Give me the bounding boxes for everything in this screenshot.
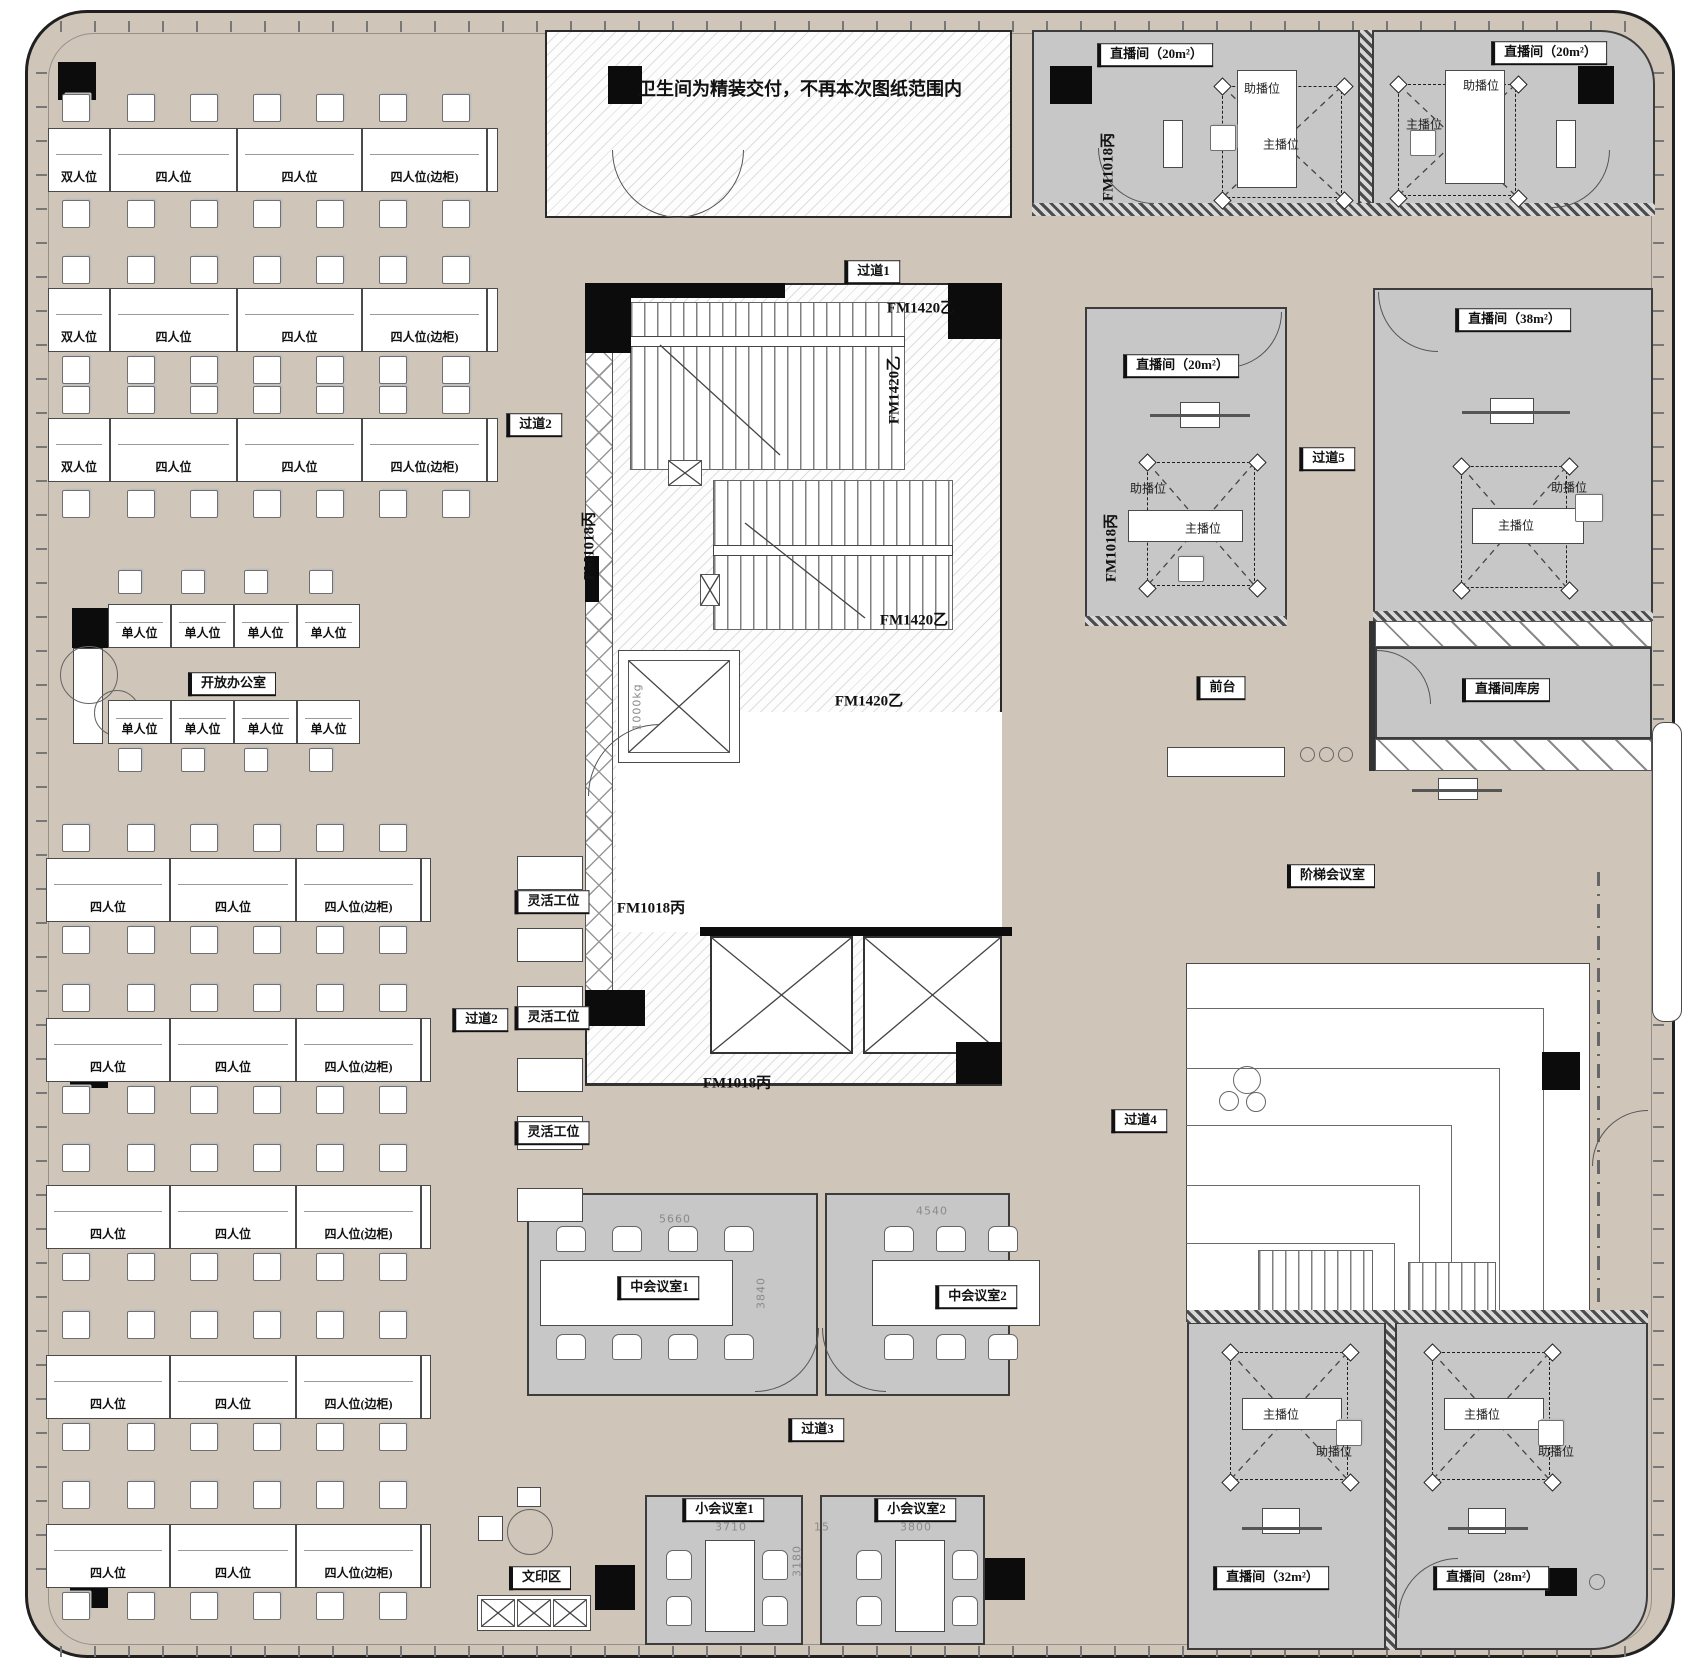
column	[1542, 1052, 1580, 1090]
desk-四人位: 四人位	[46, 1355, 170, 1419]
column	[608, 66, 642, 104]
chair	[62, 356, 90, 384]
chair	[190, 1086, 218, 1114]
chair	[379, 356, 407, 384]
chair	[62, 824, 90, 852]
desk-label: 四人位	[111, 458, 236, 475]
desk-label: 四人位	[238, 328, 361, 345]
desk-label: 双人位	[49, 458, 109, 475]
desk-单人位: 单人位	[108, 604, 171, 648]
chair	[316, 386, 344, 414]
chair	[316, 256, 344, 284]
live-28-label: 直播间（28m²）	[1433, 1566, 1549, 1590]
chair	[253, 94, 281, 122]
text-seat: 主播位	[1263, 136, 1299, 153]
desk-四人位(边柜): 四人位(边柜)	[362, 418, 487, 482]
table-circle	[1233, 1066, 1261, 1094]
chair	[316, 1423, 344, 1451]
wall-band	[1360, 30, 1372, 205]
table-circle	[1219, 1091, 1239, 1111]
column	[1578, 66, 1614, 104]
chair	[127, 490, 155, 518]
camera-bar	[1242, 1527, 1322, 1530]
chair	[379, 200, 407, 228]
chair	[442, 256, 470, 284]
text-seat: 主播位	[1185, 520, 1221, 537]
desk-四人位: 四人位	[110, 128, 237, 192]
desk-四人位: 四人位	[237, 128, 362, 192]
corridor-4: 过道4	[1111, 1109, 1167, 1133]
camera	[1468, 1508, 1506, 1534]
text-seat: 主播位	[1498, 517, 1534, 534]
meeting-chair	[666, 1596, 692, 1626]
desk-label: 单人位	[172, 624, 233, 641]
desk-四人位: 四人位	[46, 1524, 170, 1588]
chair	[309, 748, 333, 772]
chair	[190, 984, 218, 1012]
desk-label: 单人位	[172, 720, 233, 737]
chair	[62, 926, 90, 954]
meeting-chair	[668, 1226, 698, 1252]
desk-label: 四人位	[171, 898, 295, 915]
chair	[316, 94, 344, 122]
chair	[127, 1592, 155, 1620]
text-seat: 助播位	[1316, 1443, 1352, 1460]
chair	[379, 824, 407, 852]
chair	[62, 386, 90, 414]
chair	[190, 200, 218, 228]
camera	[1262, 1508, 1300, 1534]
chair	[127, 1423, 155, 1451]
desk-四人位: 四人位	[110, 418, 237, 482]
tiered-room-label: 阶梯会议室	[1287, 864, 1375, 888]
desk-label: 单人位	[298, 720, 359, 737]
stool	[1319, 747, 1334, 762]
chair	[316, 1481, 344, 1509]
desk-label: 四人位	[238, 168, 361, 185]
copier	[553, 1599, 587, 1627]
desk-四人位: 四人位	[170, 1018, 296, 1082]
desk-label: 四人位(边柜)	[363, 168, 486, 185]
desk-label: 四人位	[47, 898, 169, 915]
meeting-chair	[556, 1226, 586, 1252]
desk-label: 四人位	[47, 1395, 169, 1412]
chair	[190, 386, 218, 414]
chair	[316, 1592, 344, 1620]
chair	[442, 386, 470, 414]
desk-四人位(边柜): 四人位(边柜)	[362, 128, 487, 192]
chair	[442, 490, 470, 518]
text-seat: 主播位	[1406, 116, 1442, 133]
chair	[190, 1481, 218, 1509]
meeting-m2-label: 中会议室2	[935, 1285, 1017, 1309]
desk-label: 单人位	[109, 720, 170, 737]
chair	[316, 824, 344, 852]
desk-label: 四人位(边柜)	[363, 328, 486, 345]
meeting-chair	[988, 1334, 1018, 1360]
desk-单人位: 单人位	[297, 604, 360, 648]
stool-square	[478, 1516, 503, 1541]
flex-desk	[517, 928, 583, 962]
desk-label: 单人位	[298, 624, 359, 641]
text-fm: FM1018丙	[578, 512, 599, 580]
desk-四人位(边柜): 四人位(边柜)	[296, 1185, 421, 1249]
print-area: 文印区	[509, 1566, 571, 1590]
desk-label: 单人位	[235, 720, 296, 737]
corridor-2: 过道2	[506, 413, 562, 437]
reception: 前台	[1196, 676, 1245, 700]
text-dim: 15	[814, 1521, 830, 1534]
side-cabinet	[421, 1524, 431, 1588]
chair	[62, 1086, 90, 1114]
restroom-note: 卫生间为精装交付，不再本次图纸范围内	[638, 75, 962, 101]
text-fm: FM1018丙	[1097, 133, 1118, 201]
chair	[253, 356, 281, 384]
core-bottom-line	[585, 1083, 1002, 1086]
chair	[253, 1311, 281, 1339]
desk-label: 四人位(边柜)	[297, 1225, 420, 1242]
live-20c-label: 直播间（20m²）	[1123, 354, 1239, 378]
stool	[1300, 747, 1315, 762]
chair	[127, 1311, 155, 1339]
chair	[379, 386, 407, 414]
meeting-m1-label: 中会议室1	[617, 1276, 699, 1300]
corridor-3: 过道3	[788, 1418, 844, 1442]
chair	[379, 1311, 407, 1339]
chair	[316, 1253, 344, 1281]
chair	[62, 1592, 90, 1620]
chair	[190, 1423, 218, 1451]
desk-label: 四人位(边柜)	[297, 898, 420, 915]
desk-label: 双人位	[49, 328, 109, 345]
chair	[316, 1144, 344, 1172]
meeting-chair	[666, 1550, 692, 1580]
chair	[244, 570, 268, 594]
floor-drain	[1589, 1574, 1605, 1590]
chair	[190, 490, 218, 518]
chair	[62, 1311, 90, 1339]
text-seat: 助播位	[1551, 479, 1587, 496]
storage-rack	[1375, 621, 1652, 647]
flex-label: 灵活工位	[514, 890, 589, 914]
stair-arrow	[660, 345, 780, 455]
desk-四人位: 四人位	[237, 418, 362, 482]
desk-四人位: 四人位	[46, 858, 170, 922]
reception-desk	[1167, 747, 1285, 777]
chair	[190, 356, 218, 384]
meeting-chair	[762, 1596, 788, 1626]
chair	[309, 570, 333, 594]
meeting-chair	[612, 1334, 642, 1360]
desk-label: 四人位	[238, 458, 361, 475]
desk-单人位: 单人位	[171, 604, 234, 648]
desk-label: 四人位(边柜)	[297, 1395, 420, 1412]
text-fm: FM1018丙	[1100, 514, 1121, 582]
chair	[118, 748, 142, 772]
stair-arrow	[745, 523, 865, 618]
chair	[379, 926, 407, 954]
flex-desk	[517, 856, 583, 890]
text-dim: 3840	[755, 1277, 768, 1309]
refuge-ledge	[1652, 722, 1682, 1022]
desk-label: 双人位	[49, 168, 109, 185]
copier	[517, 1599, 551, 1627]
desk-label: 四人位(边柜)	[297, 1058, 420, 1075]
chair	[127, 386, 155, 414]
chair	[442, 200, 470, 228]
desk-单人位: 单人位	[234, 700, 297, 744]
chair	[181, 748, 205, 772]
live-38-label: 直播间（38m²）	[1455, 308, 1571, 332]
chair	[316, 926, 344, 954]
desk-label: 四人位	[111, 328, 236, 345]
meeting-chair	[856, 1550, 882, 1580]
chair	[127, 356, 155, 384]
chair	[62, 1481, 90, 1509]
shaft-box	[668, 460, 702, 486]
stool-square	[517, 1487, 541, 1507]
desk-单人位: 单人位	[171, 700, 234, 744]
desk-label: 四人位	[111, 168, 236, 185]
text-fm: FM1420乙	[880, 609, 948, 630]
copier	[481, 1599, 515, 1627]
chair	[190, 824, 218, 852]
shaft-box	[700, 574, 720, 606]
meeting-chair	[884, 1334, 914, 1360]
column	[1545, 1568, 1577, 1596]
camera-bar	[1448, 1527, 1528, 1530]
meeting-chair	[762, 1550, 788, 1580]
chair	[244, 748, 268, 772]
meeting-table	[705, 1540, 755, 1632]
meeting-chair	[884, 1226, 914, 1252]
chair	[118, 570, 142, 594]
corridor-1: 过道1	[844, 260, 900, 284]
text-dim: 3180	[791, 1545, 804, 1577]
live-32-label: 直播间（32m²）	[1213, 1566, 1329, 1590]
meeting-chair	[936, 1334, 966, 1360]
chair	[253, 824, 281, 852]
meeting-chair	[556, 1334, 586, 1360]
side-cabinet	[487, 288, 498, 352]
chair	[316, 984, 344, 1012]
text-fm: FM1018丙	[617, 897, 685, 918]
chair	[379, 1086, 407, 1114]
desk-双人位: 双人位	[48, 288, 110, 352]
elevator-2	[863, 936, 1002, 1054]
chair	[316, 1086, 344, 1114]
chair	[253, 386, 281, 414]
meeting-chair	[724, 1226, 754, 1252]
flex-desk	[517, 1188, 583, 1222]
side-cabinet	[421, 1185, 431, 1249]
chair	[379, 984, 407, 1012]
chair	[127, 984, 155, 1012]
chair	[127, 824, 155, 852]
text-dim: 4540	[916, 1205, 948, 1218]
desk-单人位: 单人位	[297, 700, 360, 744]
text-dim: 5660	[659, 1213, 691, 1226]
live-20a-label: 直播间（20m²）	[1097, 43, 1213, 67]
chair	[379, 94, 407, 122]
text-seat: 助播位	[1244, 80, 1280, 97]
desk-label: 单人位	[235, 624, 296, 641]
column	[948, 283, 1002, 339]
desk-四人位: 四人位	[170, 858, 296, 922]
chair	[379, 1253, 407, 1281]
chair	[253, 256, 281, 284]
chair	[379, 1592, 407, 1620]
meeting-s1-label: 小会议室1	[682, 1498, 764, 1522]
chair	[379, 256, 407, 284]
meeting-chair	[668, 1334, 698, 1360]
text-fm: FM1420乙	[883, 356, 904, 424]
round-table	[507, 1509, 553, 1555]
text-dim: 3710	[715, 1521, 747, 1534]
text-fm: FM1420乙	[887, 297, 955, 318]
chair	[62, 1253, 90, 1281]
desk-四人位: 四人位	[46, 1018, 170, 1082]
floor-plan: 双人位四人位四人位四人位(边柜)双人位四人位四人位四人位(边柜)双人位四人位四人…	[0, 0, 1700, 1678]
chair	[1178, 556, 1204, 582]
wall-band	[1386, 1322, 1395, 1650]
chair	[190, 1144, 218, 1172]
meeting-table	[895, 1540, 945, 1632]
chair	[127, 1144, 155, 1172]
column	[956, 1042, 1002, 1084]
meeting-chair	[612, 1226, 642, 1252]
wall-line	[1369, 621, 1375, 771]
desk-label: 四人位	[171, 1058, 295, 1075]
flex-label: 灵活工位	[514, 1006, 589, 1030]
chair	[379, 490, 407, 518]
desk-四人位: 四人位	[110, 288, 237, 352]
chair	[253, 1423, 281, 1451]
desk-label: 四人位	[171, 1395, 295, 1412]
chair	[127, 1481, 155, 1509]
text-fm: FM1420乙	[835, 690, 903, 711]
flex-desk	[517, 1058, 583, 1092]
chair	[127, 1253, 155, 1281]
side-cabinet	[421, 1018, 431, 1082]
chair	[316, 490, 344, 518]
chair	[1410, 130, 1436, 156]
desk-四人位(边柜): 四人位(边柜)	[296, 1355, 421, 1419]
stool	[1338, 747, 1353, 762]
column	[72, 608, 108, 648]
chair	[379, 1481, 407, 1509]
flex-label: 灵活工位	[514, 1121, 589, 1145]
open-office: 开放办公室	[188, 672, 276, 696]
chair	[316, 1311, 344, 1339]
meeting-chair	[952, 1550, 978, 1580]
text-seat: 主播位	[1263, 1406, 1299, 1423]
column	[585, 990, 645, 1026]
chair	[190, 926, 218, 954]
side-cabinet	[421, 1355, 431, 1419]
chair	[62, 94, 90, 122]
chair	[62, 984, 90, 1012]
chair	[62, 200, 90, 228]
camera-bar	[1462, 411, 1570, 414]
chair	[127, 200, 155, 228]
desk-label: 四人位(边柜)	[297, 1564, 420, 1581]
desk-label: 四人位	[171, 1564, 295, 1581]
desk-四人位: 四人位	[237, 288, 362, 352]
desk-四人位: 四人位	[46, 1185, 170, 1249]
chair	[253, 490, 281, 518]
restroom-area	[545, 30, 1012, 218]
chair	[379, 1423, 407, 1451]
desk-四人位(边柜): 四人位(边柜)	[296, 858, 421, 922]
desk-四人位(边柜): 四人位(边柜)	[296, 1018, 421, 1082]
desk-label: 四人位	[47, 1058, 169, 1075]
column	[985, 1558, 1025, 1600]
chair	[62, 490, 90, 518]
column	[585, 283, 631, 353]
text-seat: 助播位	[1538, 1443, 1574, 1460]
desk-label: 四人位(边柜)	[363, 458, 486, 475]
chair	[1575, 494, 1603, 522]
chair	[190, 1311, 218, 1339]
chair	[62, 1144, 90, 1172]
desk-label: 四人位	[47, 1225, 169, 1242]
desk-双人位: 双人位	[48, 418, 110, 482]
desk-四人位: 四人位	[170, 1185, 296, 1249]
chair	[127, 1086, 155, 1114]
side-cabinet	[421, 858, 431, 922]
side-cabinet	[487, 418, 498, 482]
storage-rack	[1375, 739, 1652, 771]
desk-四人位: 四人位	[170, 1355, 296, 1419]
storage-label: 直播间库房	[1462, 678, 1550, 702]
text-fm: FM1018丙	[703, 1072, 771, 1093]
text-dim: 3800	[900, 1521, 932, 1534]
chair	[442, 94, 470, 122]
chair	[253, 926, 281, 954]
chair	[253, 1481, 281, 1509]
meeting-chair	[988, 1226, 1018, 1252]
chair	[253, 1144, 281, 1172]
chair	[190, 94, 218, 122]
text-seat: 助播位	[1463, 77, 1499, 94]
meeting-s2-label: 小会议室2	[874, 1498, 956, 1522]
corridor-2: 过道2	[452, 1008, 508, 1032]
chair	[253, 984, 281, 1012]
chair	[62, 1423, 90, 1451]
wall-band	[1373, 611, 1653, 621]
chair	[181, 570, 205, 594]
wall-band	[1085, 616, 1287, 626]
wall-band	[1187, 1310, 1648, 1323]
text-seat: 助播位	[1130, 480, 1166, 497]
chair	[190, 1253, 218, 1281]
live-20b-label: 直播间（20m²）	[1491, 41, 1607, 65]
chair	[316, 200, 344, 228]
meeting-chair	[856, 1596, 882, 1626]
chair	[1210, 125, 1236, 151]
elevator-1	[710, 936, 853, 1054]
chair	[379, 1144, 407, 1172]
side-cabinet	[487, 128, 498, 192]
meeting-chair	[936, 1226, 966, 1252]
table-circle	[1246, 1092, 1266, 1112]
desk-单人位: 单人位	[108, 700, 171, 744]
chair	[442, 356, 470, 384]
elevator-front-wall	[700, 927, 1012, 936]
meeting-chair	[724, 1334, 754, 1360]
text-seat: 主播位	[1464, 1406, 1500, 1423]
